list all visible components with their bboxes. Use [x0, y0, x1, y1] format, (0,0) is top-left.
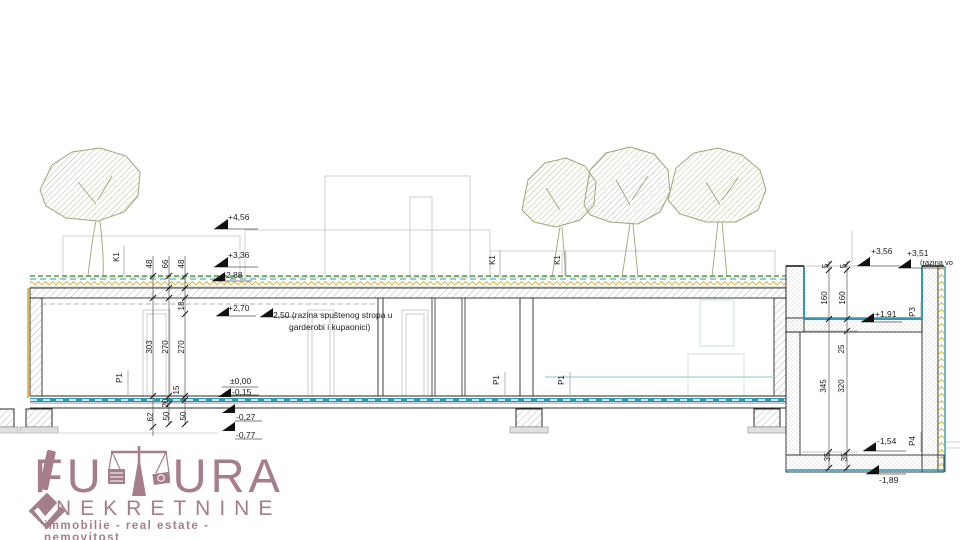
level-label: -1,54 — [877, 437, 896, 446]
floor-tag: P1 — [493, 375, 501, 385]
dim-label: 48 — [146, 260, 154, 269]
scale-icon — [108, 444, 170, 498]
dim-label: 270 — [162, 340, 170, 353]
dim-label: 48 — [178, 260, 186, 269]
level-label: +2,88 — [221, 271, 243, 280]
logo-tagline: immobilie - real estate - nemovitost — [44, 520, 286, 540]
ceiling-note-line1: +2,50 (razina spuštenog stropa u — [268, 310, 393, 320]
trees — [40, 147, 766, 277]
dim-label: 20 — [162, 399, 170, 408]
dim-label: 35 — [841, 453, 849, 462]
dim-label: 160 — [821, 291, 829, 304]
pool-tag: P3 — [909, 307, 917, 317]
dim-label: 270 — [178, 340, 186, 353]
roof-tag: K1 — [113, 252, 121, 262]
level-label: -0,27 — [236, 413, 255, 422]
dim-label: 160 — [839, 291, 847, 304]
logo-wordmark: FU URA — [34, 444, 284, 499]
dim-label: 62 — [147, 413, 155, 422]
dim-label: 18 — [178, 302, 186, 311]
level-marker-icons — [212, 219, 944, 474]
logo-word-right: URA — [173, 452, 284, 499]
dim-label: 5 — [822, 264, 830, 268]
dim-label: 25 — [838, 345, 846, 354]
roof-slab — [30, 276, 786, 298]
dim-label: 303 — [146, 340, 154, 353]
level-label: -0,15 — [232, 388, 251, 397]
level-label: +3,56 — [871, 247, 893, 256]
roof-tag: K1 — [554, 255, 562, 265]
architectural-section-sheet: +4,56 +3,36 +2,88 +2,70 ±0,00 -0,15 -0,2… — [0, 0, 960, 540]
floor-slab — [30, 396, 786, 408]
dim-label: 66 — [162, 260, 170, 269]
level-label: +3,51 — [907, 249, 929, 258]
dimension-chains-pool — [802, 261, 858, 471]
floor-tag: P1 — [558, 375, 566, 385]
level-label: ±0,00 — [230, 377, 251, 386]
background-elevation-outlines — [63, 176, 960, 448]
dim-label: 320 — [838, 379, 846, 392]
roof-tag: K1 — [489, 255, 497, 265]
level-label: -1,89 — [879, 476, 898, 485]
level-label: +3,36 — [228, 251, 250, 260]
logo-line2: NEKRETNINE — [56, 497, 281, 521]
dim-label: 50 — [180, 412, 188, 421]
ceiling-note-line2: garderobi i kupaonici) — [289, 322, 370, 332]
level-label: +1,91 — [875, 310, 897, 319]
water-level-note: (razina vo — [920, 259, 953, 267]
dim-label: 15 — [173, 386, 181, 395]
level-label: -0,77 — [236, 431, 255, 440]
floor-tag: P1 — [116, 373, 124, 383]
level-label: +2,70 — [228, 304, 250, 313]
walls — [28, 288, 786, 398]
dim-label: 50 — [163, 412, 171, 421]
footings — [0, 409, 786, 433]
dim-label: 345 — [820, 379, 828, 392]
logo-word-left: FU — [34, 452, 105, 499]
dim-label: 35 — [824, 453, 832, 462]
level-label: +4,56 — [228, 213, 250, 222]
futura-logo: FU URA NEKRETNINE immobilie - real estat… — [26, 444, 286, 536]
pool-tag: P4 — [909, 436, 917, 446]
dim-label: 5 — [840, 264, 848, 268]
